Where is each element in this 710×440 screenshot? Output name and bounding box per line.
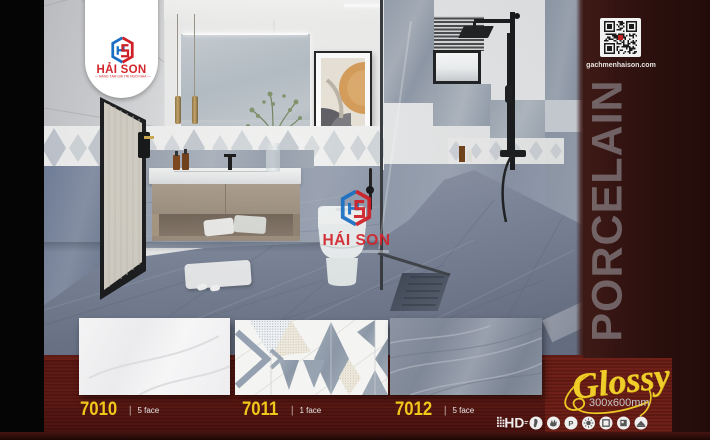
svg-text:P: P (568, 419, 573, 428)
svg-text:HD: HD (504, 415, 524, 429)
